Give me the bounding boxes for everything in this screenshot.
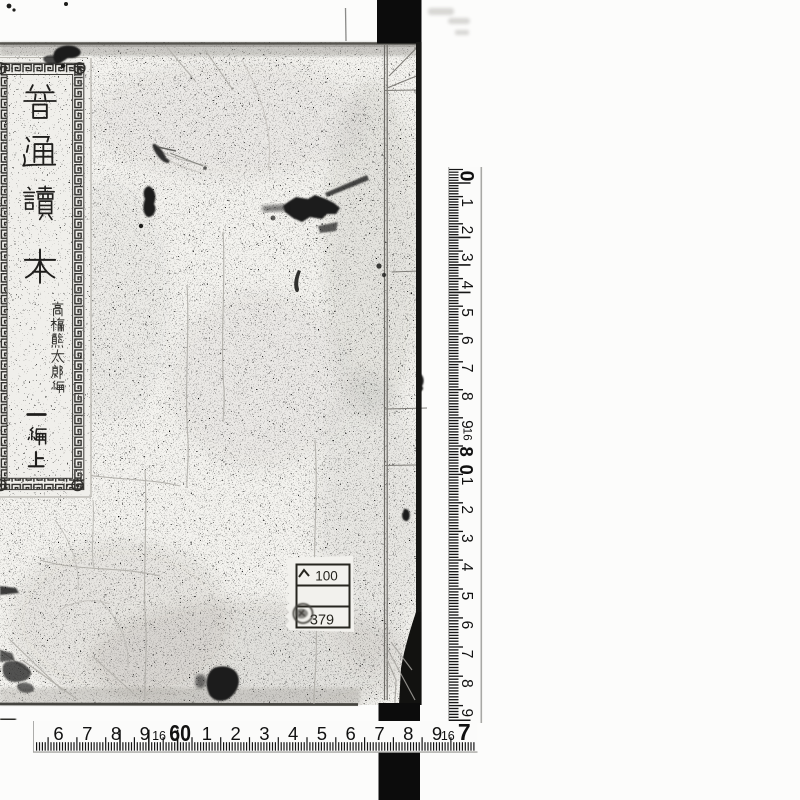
svg-text:5: 5 — [458, 592, 475, 601]
svg-text:60: 60 — [169, 721, 191, 747]
svg-text:8: 8 — [111, 723, 121, 744]
svg-text:6: 6 — [53, 723, 63, 744]
svg-text:8: 8 — [403, 723, 413, 744]
svg-text:7: 7 — [82, 723, 92, 744]
svg-text:3: 3 — [458, 534, 475, 543]
svg-text:16: 16 — [152, 729, 166, 743]
svg-text:4: 4 — [458, 281, 475, 290]
svg-text:7: 7 — [458, 719, 471, 745]
svg-text:2: 2 — [230, 723, 240, 744]
svg-text:3: 3 — [458, 253, 475, 262]
svg-text:6: 6 — [346, 723, 356, 744]
svg-text:8: 8 — [458, 679, 475, 688]
svg-text:7: 7 — [458, 364, 475, 373]
svg-text:5: 5 — [458, 308, 475, 317]
svg-text:0: 0 — [456, 465, 477, 475]
svg-text:9: 9 — [458, 708, 475, 717]
svg-text:379: 379 — [310, 613, 334, 629]
svg-text:1: 1 — [458, 198, 475, 207]
svg-text:3: 3 — [259, 723, 269, 744]
svg-text:5: 5 — [317, 723, 327, 744]
svg-text:1: 1 — [458, 477, 475, 486]
svg-text:1: 1 — [202, 723, 212, 744]
svg-text:100: 100 — [315, 569, 338, 584]
svg-text:2: 2 — [458, 226, 475, 235]
svg-text:8: 8 — [456, 447, 477, 457]
svg-text:0: 0 — [456, 171, 478, 182]
svg-text:6: 6 — [458, 336, 475, 345]
svg-text:2: 2 — [458, 505, 475, 514]
svg-text:7: 7 — [458, 650, 475, 659]
svg-text:8: 8 — [458, 392, 475, 401]
svg-text:7: 7 — [374, 723, 384, 744]
svg-text:4: 4 — [458, 563, 475, 572]
svg-text:9: 9 — [140, 723, 150, 744]
svg-text:16: 16 — [441, 729, 455, 743]
svg-text:4: 4 — [288, 723, 298, 744]
svg-text:6: 6 — [458, 621, 475, 630]
svg-text:16: 16 — [461, 428, 473, 441]
